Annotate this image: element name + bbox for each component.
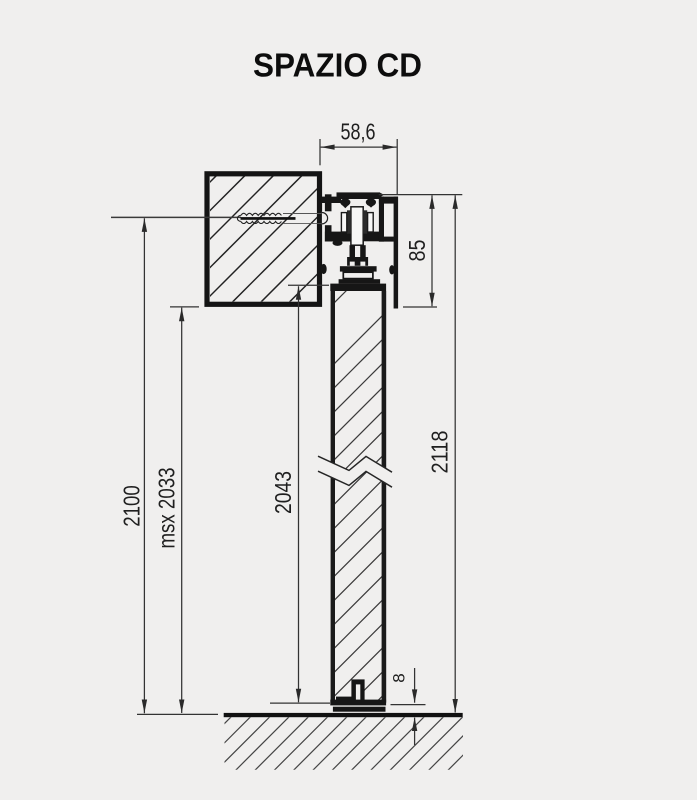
svg-text:2118: 2118 — [427, 431, 453, 474]
svg-text:58,6: 58,6 — [341, 119, 376, 145]
svg-text:2043: 2043 — [270, 471, 296, 514]
svg-text:85: 85 — [404, 240, 430, 262]
svg-text:SPAZIO CD: SPAZIO CD — [253, 48, 422, 85]
svg-text:8: 8 — [390, 673, 409, 682]
svg-text:msx 2033: msx 2033 — [154, 468, 180, 549]
svg-text:2100: 2100 — [118, 485, 144, 527]
